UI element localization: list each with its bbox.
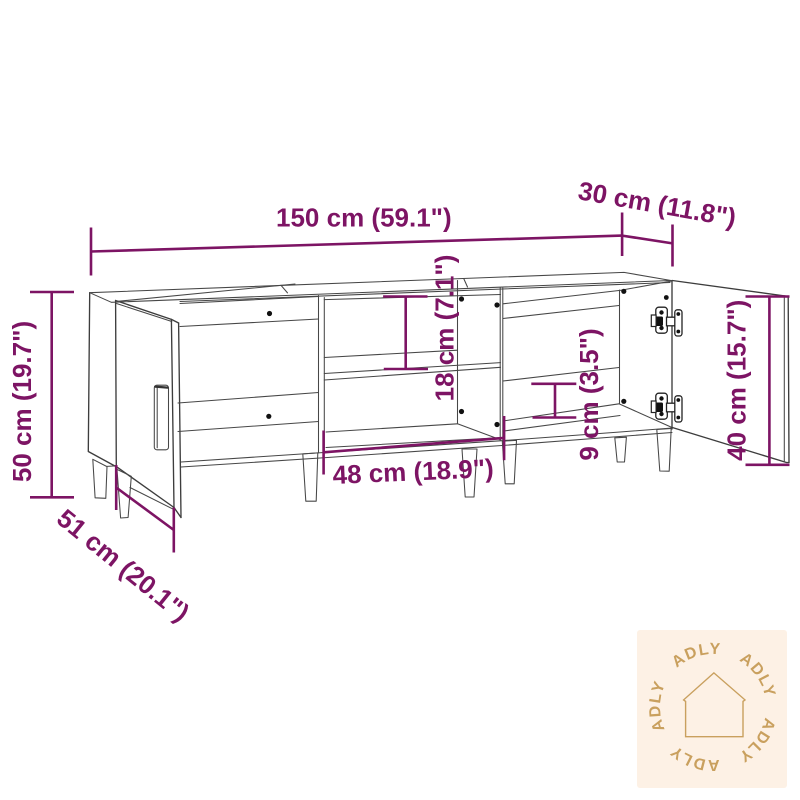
svg-text:18 cm (7.1"): 18 cm (7.1") <box>430 255 460 402</box>
svg-text:40 cm (15.7"): 40 cm (15.7") <box>722 300 752 461</box>
svg-text:150 cm (59.1"): 150 cm (59.1") <box>276 203 452 233</box>
svg-text:50 cm (19.7"): 50 cm (19.7") <box>7 321 37 482</box>
svg-text:9 cm (3.5"): 9 cm (3.5") <box>574 328 604 460</box>
